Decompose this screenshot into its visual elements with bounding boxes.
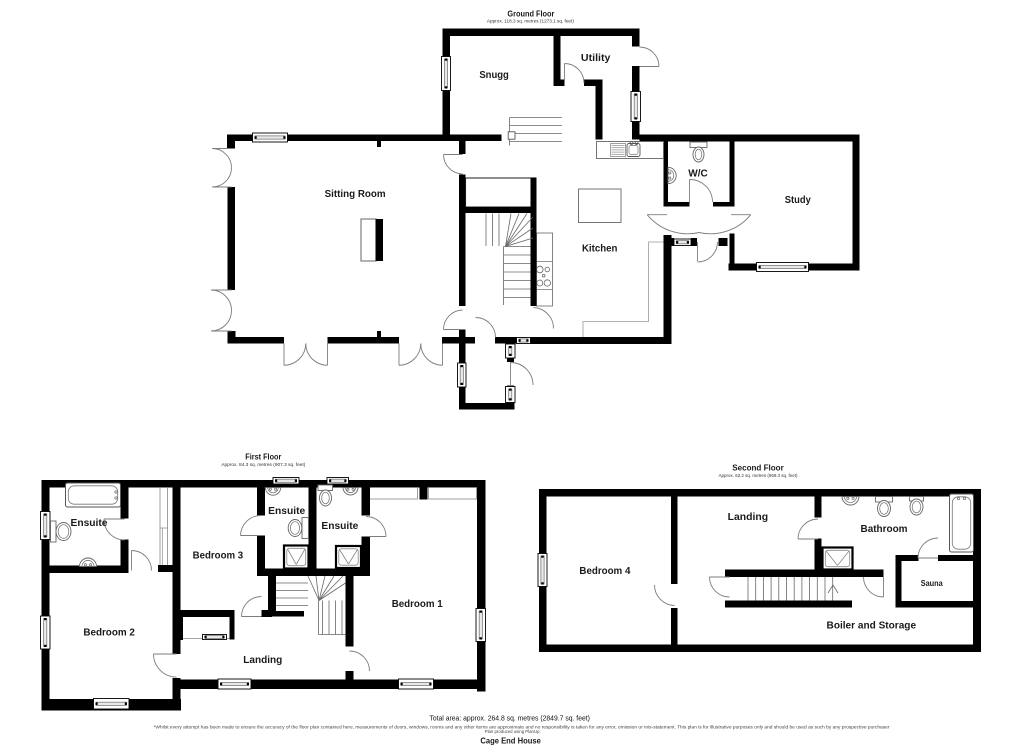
svg-text:Sauna: Sauna: [921, 578, 943, 588]
svg-text:Bedroom 1: Bedroom 1: [392, 599, 443, 610]
svg-text:Utility: Utility: [581, 53, 611, 64]
svg-text:Sitting Room: Sitting Room: [325, 189, 386, 200]
svg-text:Bathroom: Bathroom: [861, 524, 908, 535]
svg-text:Approx. 62.2 sq. metres (669.3: Approx. 62.2 sq. metres (669.3 sq. feet): [719, 473, 798, 479]
svg-text:Ground Floor: Ground Floor: [507, 8, 555, 18]
svg-text:Ensuite: Ensuite: [71, 518, 108, 529]
svg-text:Bedroom 2: Bedroom 2: [83, 628, 135, 639]
svg-text:Bedroom 3: Bedroom 3: [193, 551, 244, 562]
svg-text:Landing: Landing: [243, 655, 282, 666]
svg-text:Ensuite: Ensuite: [268, 506, 305, 517]
svg-text:Ensuite: Ensuite: [321, 521, 358, 532]
svg-text:W/C: W/C: [688, 169, 708, 180]
svg-text:Snugg: Snugg: [479, 70, 509, 81]
svg-text:First Floor: First Floor: [245, 451, 282, 461]
svg-text:Second Floor: Second Floor: [732, 463, 784, 473]
svg-text:Approx. 118.3 sq. metres (1273: Approx. 118.3 sq. metres (1273.1 sq. fee…: [487, 18, 574, 24]
svg-text:Plan produced using PlanUp.: Plan produced using PlanUp.: [485, 729, 541, 734]
svg-text:Cage End House: Cage End House: [480, 736, 541, 745]
svg-text:Approx. 84.3 sq. metres (907.3: Approx. 84.3 sq. metres (907.3 sq. feet): [221, 462, 305, 468]
svg-text:Boiler and Storage: Boiler and Storage: [827, 621, 917, 632]
svg-text:Landing: Landing: [728, 512, 769, 523]
svg-text:Kitchen: Kitchen: [582, 244, 618, 255]
svg-text:Bedroom 4: Bedroom 4: [579, 566, 630, 577]
svg-text:Total area: approx. 264.8 sq.: Total area: approx. 264.8 sq. metres (28…: [429, 714, 590, 723]
svg-text:Study: Study: [785, 195, 811, 206]
